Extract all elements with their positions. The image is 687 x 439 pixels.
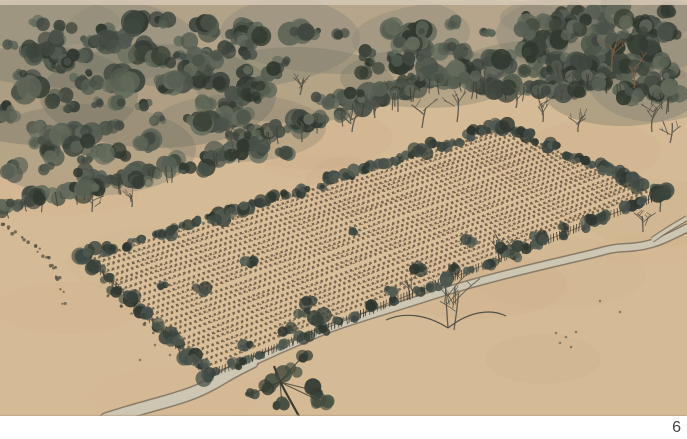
painting-canvas — [0, 0, 687, 416]
bottom-margin: 6 — [0, 416, 687, 439]
page-number: 6 — [672, 418, 681, 438]
book-page: 6 — [0, 0, 687, 439]
